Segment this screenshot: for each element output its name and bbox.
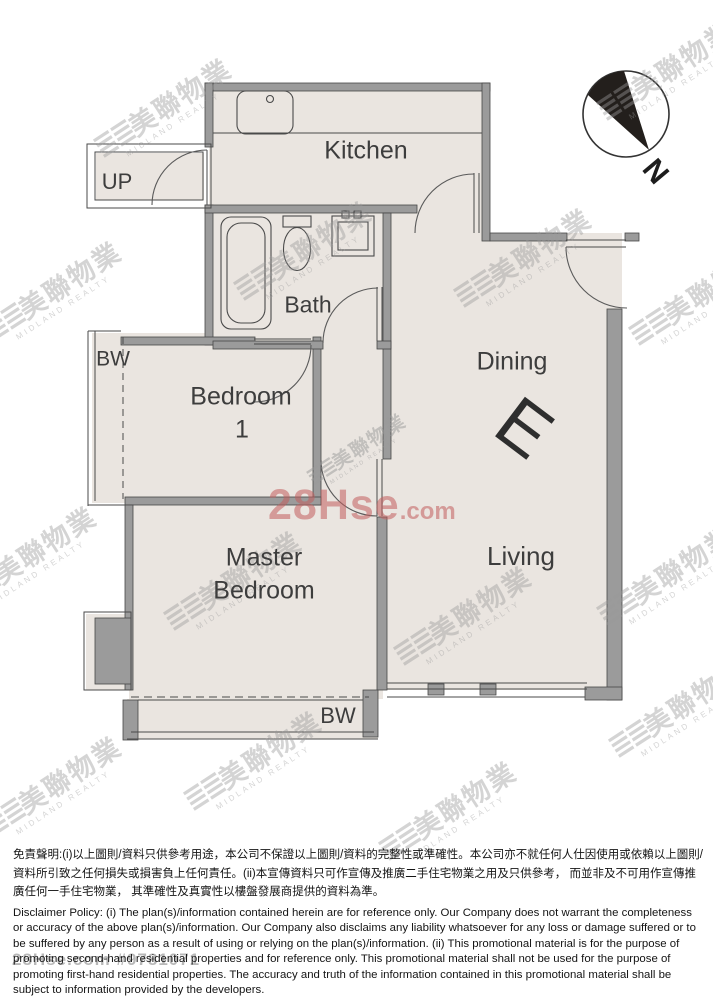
floor-plan-drawing <box>0 0 713 830</box>
label-living: Living <box>487 543 555 569</box>
label-bedroom1-number: 1 <box>235 418 249 443</box>
label-bay-window-left: BW <box>96 349 130 370</box>
north-arrow-icon <box>583 71 669 157</box>
disclaimer-chinese: 免責聲明:(i)以上圖則/資料只供參考用途，本公司不保證以上圖則/資料的完整性或… <box>13 846 705 902</box>
label-up-stairs: UP <box>102 171 133 193</box>
disclaimer-english: Disclaimer Policy: (i) The plan(s)/infor… <box>13 906 705 1000</box>
floor-plan-page: { "floor_plan": { "rooms": { "kitchen": … <box>0 0 713 1000</box>
label-bath: Bath <box>284 294 331 317</box>
disclaimer-block: 免責聲明:(i)以上圖則/資料只供參考用途，本公司不保證以上圖則/資料的完整性或… <box>13 846 705 999</box>
label-dining: Dining <box>477 350 548 375</box>
label-bedroom1: Bedroom <box>190 385 291 410</box>
label-kitchen: Kitchen <box>324 139 407 164</box>
label-master-bedroom-2: Bedroom <box>213 579 314 604</box>
label-master-bedroom-1: Master <box>226 546 302 571</box>
label-bay-window-bottom: BW <box>320 705 355 727</box>
